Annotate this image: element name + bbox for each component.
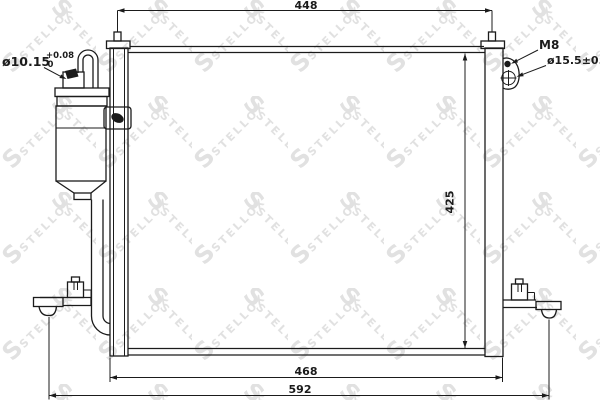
dimension-468-label: 468 [295, 365, 318, 378]
condenser-drawing: S STELLOX S STELLOX [0, 0, 600, 400]
technical-drawing-page: S STELLOX S STELLOX [0, 0, 600, 400]
port-diameter-label: ø15.5±0.1 [547, 54, 600, 67]
dimension-448-label: 448 [295, 0, 318, 12]
drier-fitting-tolerance-minus: 0 [48, 60, 54, 70]
drier-fitting-diameter-label: ø10.15 [2, 54, 50, 69]
dimension-425-label: 425 [444, 191, 457, 214]
dimension-592-label: 592 [289, 383, 312, 396]
m8-label: M8 [539, 38, 559, 52]
m8-bolt-hole [504, 61, 510, 67]
